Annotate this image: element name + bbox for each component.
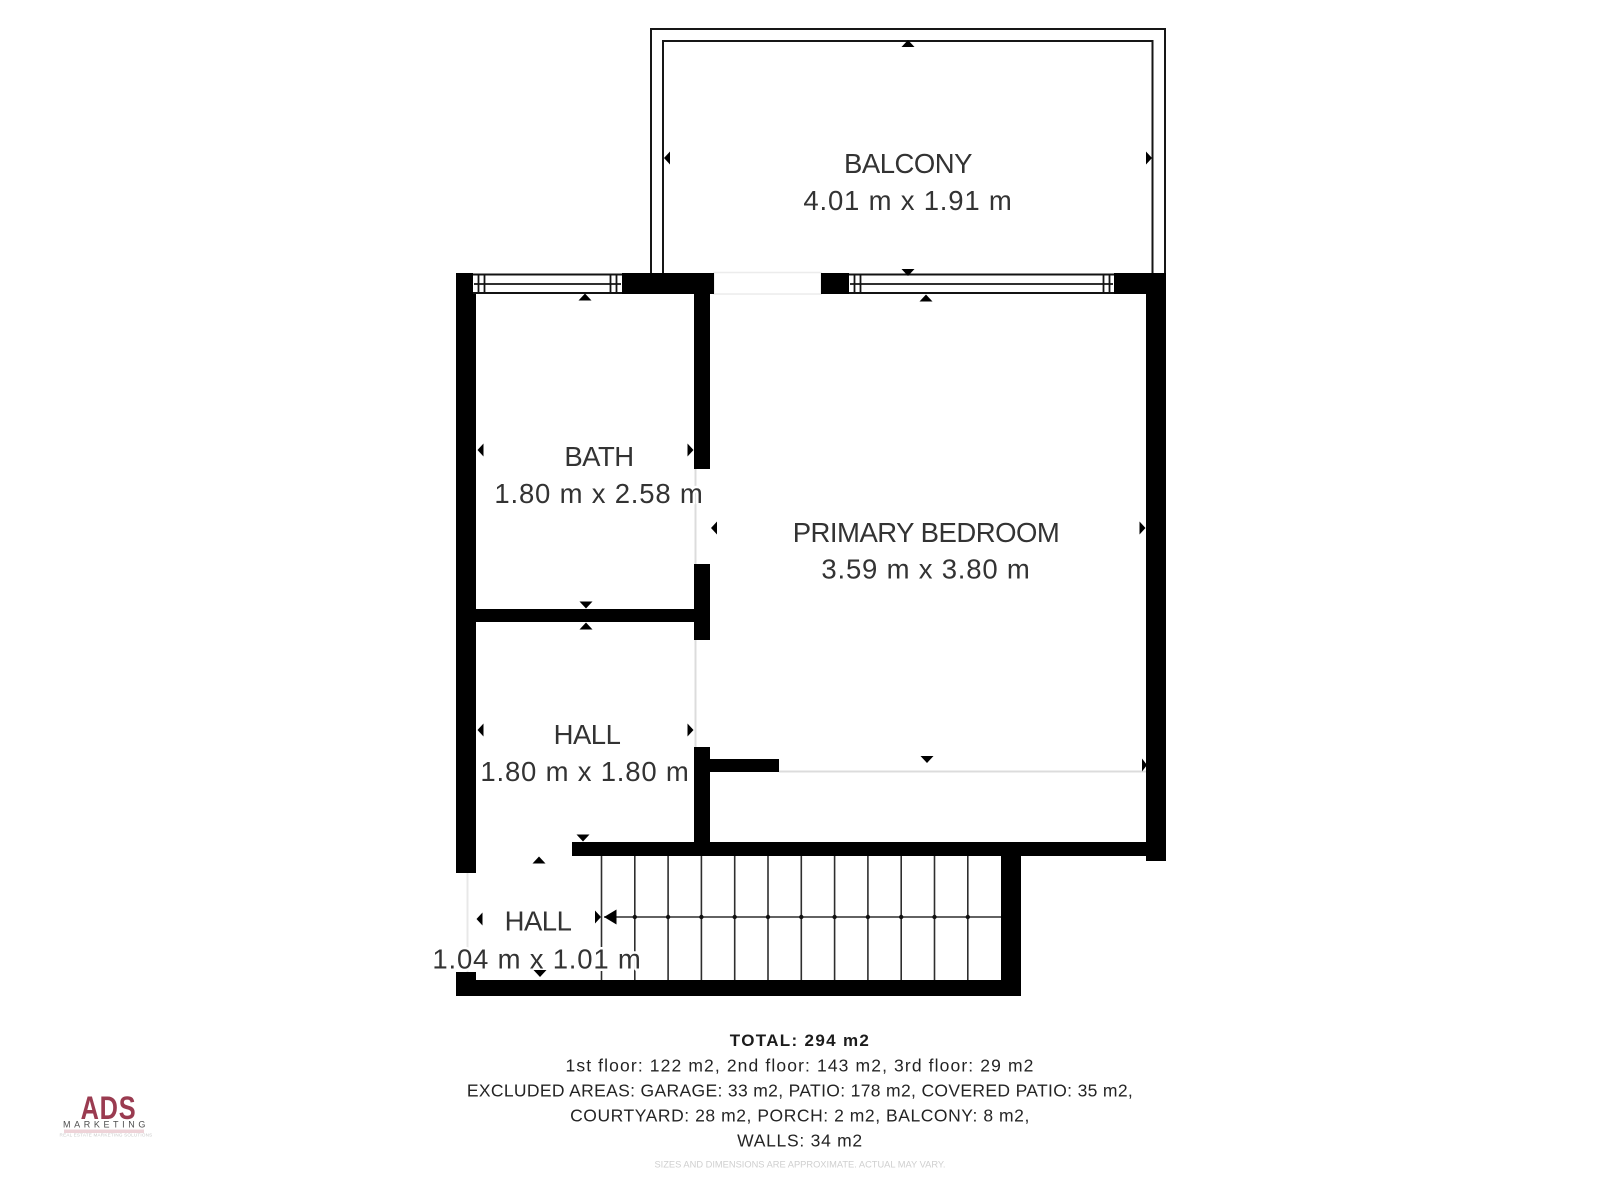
svg-text:1.80 m x 2.58 m: 1.80 m x 2.58 m	[494, 478, 703, 509]
svg-text:HALL: HALL	[505, 906, 572, 937]
svg-text:SIZES AND DIMENSIONS ARE APPRO: SIZES AND DIMENSIONS ARE APPROXIMATE. AC…	[654, 1160, 945, 1170]
svg-text:1st floor: 122 m2, 2nd floor:: 1st floor: 122 m2, 2nd floor: 143 m2, 3r…	[565, 1056, 1034, 1076]
svg-text:4.01 m x 1.91 m: 4.01 m x 1.91 m	[803, 185, 1012, 216]
svg-text:1.80 m x 1.80 m: 1.80 m x 1.80 m	[480, 756, 689, 787]
svg-text:PRIMARY BEDROOM: PRIMARY BEDROOM	[793, 517, 1060, 548]
svg-text:HALL: HALL	[554, 719, 621, 750]
svg-text:BALCONY: BALCONY	[844, 148, 972, 179]
svg-text:TOTAL: 294 m2: TOTAL: 294 m2	[730, 1031, 870, 1050]
svg-text:1.04 m x 1.01 m: 1.04 m x 1.01 m	[432, 944, 641, 975]
svg-text:REAL ESTATE MARKETING SOLUTION: REAL ESTATE MARKETING SOLUTIONS	[60, 1133, 153, 1138]
svg-text:MARKETING: MARKETING	[63, 1120, 149, 1130]
svg-text:EXCLUDED AREAS: GARAGE: 33 m2,: EXCLUDED AREAS: GARAGE: 33 m2, PATIO: 17…	[467, 1081, 1133, 1101]
svg-text:BATH: BATH	[564, 441, 633, 472]
svg-text:WALLS: 34 m2: WALLS: 34 m2	[737, 1131, 863, 1151]
svg-text:COURTYARD: 28 m2, PORCH: 2 m2,: COURTYARD: 28 m2, PORCH: 2 m2, BALCONY: …	[570, 1105, 1030, 1125]
svg-text:3.59 m x 3.80 m: 3.59 m x 3.80 m	[821, 554, 1030, 585]
